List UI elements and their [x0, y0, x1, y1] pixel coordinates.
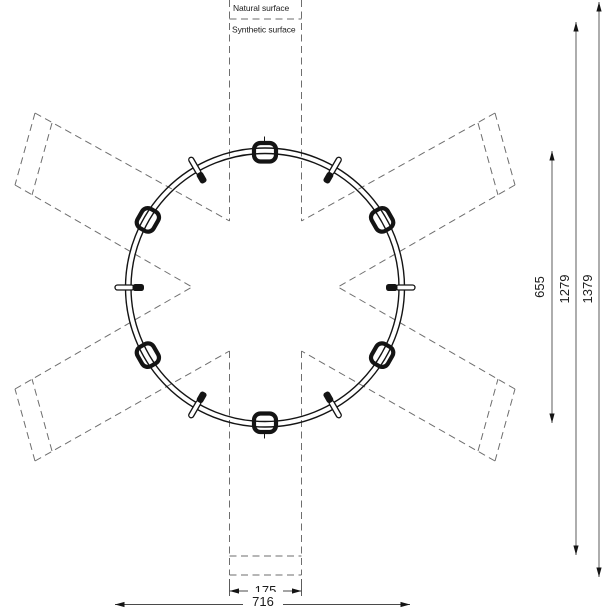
technical-drawing: Natural surface Synthetic surface 655 12… — [0, 0, 603, 608]
dimension-1279-label: 1279 — [557, 275, 572, 304]
lane-end-cap — [15, 113, 35, 185]
dimension-655-label: 655 — [532, 276, 547, 298]
lane-edge — [35, 351, 230, 461]
rim-pin — [386, 284, 415, 291]
lane-divider — [32, 379, 52, 451]
lane-end-cap — [495, 113, 515, 185]
lane-edge — [15, 287, 192, 389]
rim-outer-circle — [126, 148, 405, 427]
grip-handles — [134, 143, 395, 432]
dimension-655: 655 — [532, 151, 555, 423]
access-lane-upper-left — [15, 113, 230, 287]
arrowhead-up — [573, 22, 578, 32]
lane-divider — [478, 123, 498, 195]
lane-edge — [15, 185, 192, 287]
arrowhead-up — [596, 2, 601, 12]
lane-edge — [302, 113, 496, 221]
access-lane-lower-right — [302, 287, 516, 461]
arrowhead-up — [549, 151, 554, 161]
arrowhead-right — [292, 588, 302, 593]
roundabout — [115, 137, 415, 439]
drawing-canvas: Natural surface Synthetic surface 655 12… — [0, 0, 603, 608]
dimension-716-label: 716 — [252, 594, 274, 608]
lane-edge — [35, 113, 230, 221]
access-lane-lower-left — [15, 287, 230, 461]
grip-handle — [254, 143, 276, 162]
surface-band — [230, 0, 302, 575]
lane-edge — [338, 287, 515, 389]
dimension-716: 716 — [115, 592, 410, 608]
arrowhead-down — [596, 568, 601, 578]
access-lane-upper-right — [302, 113, 516, 287]
rim-pin — [115, 284, 144, 291]
dimension-1379-label: 1379 — [580, 275, 595, 304]
dimensions: 655 1279 1379 175 — [115, 2, 602, 608]
arrowhead-down — [549, 414, 554, 424]
lane-end-cap — [15, 389, 35, 461]
grip-handle — [254, 414, 276, 433]
rim-inner-circle — [131, 154, 399, 422]
arrowhead-right — [401, 602, 411, 607]
dashed-zones — [15, 0, 515, 575]
dimension-1379: 1379 — [580, 2, 602, 577]
arrowhead-left — [115, 602, 125, 607]
dimension-1279: 1279 — [557, 22, 579, 555]
lane-edge — [338, 185, 515, 287]
arrowhead-down — [573, 546, 578, 556]
lane-divider — [478, 379, 498, 451]
lane-end-cap — [495, 389, 515, 461]
lane-divider — [32, 123, 52, 195]
synthetic-surface-label: Synthetic surface — [232, 25, 296, 35]
arrowhead-left — [230, 588, 240, 593]
natural-surface-label: Natural surface — [233, 3, 290, 13]
